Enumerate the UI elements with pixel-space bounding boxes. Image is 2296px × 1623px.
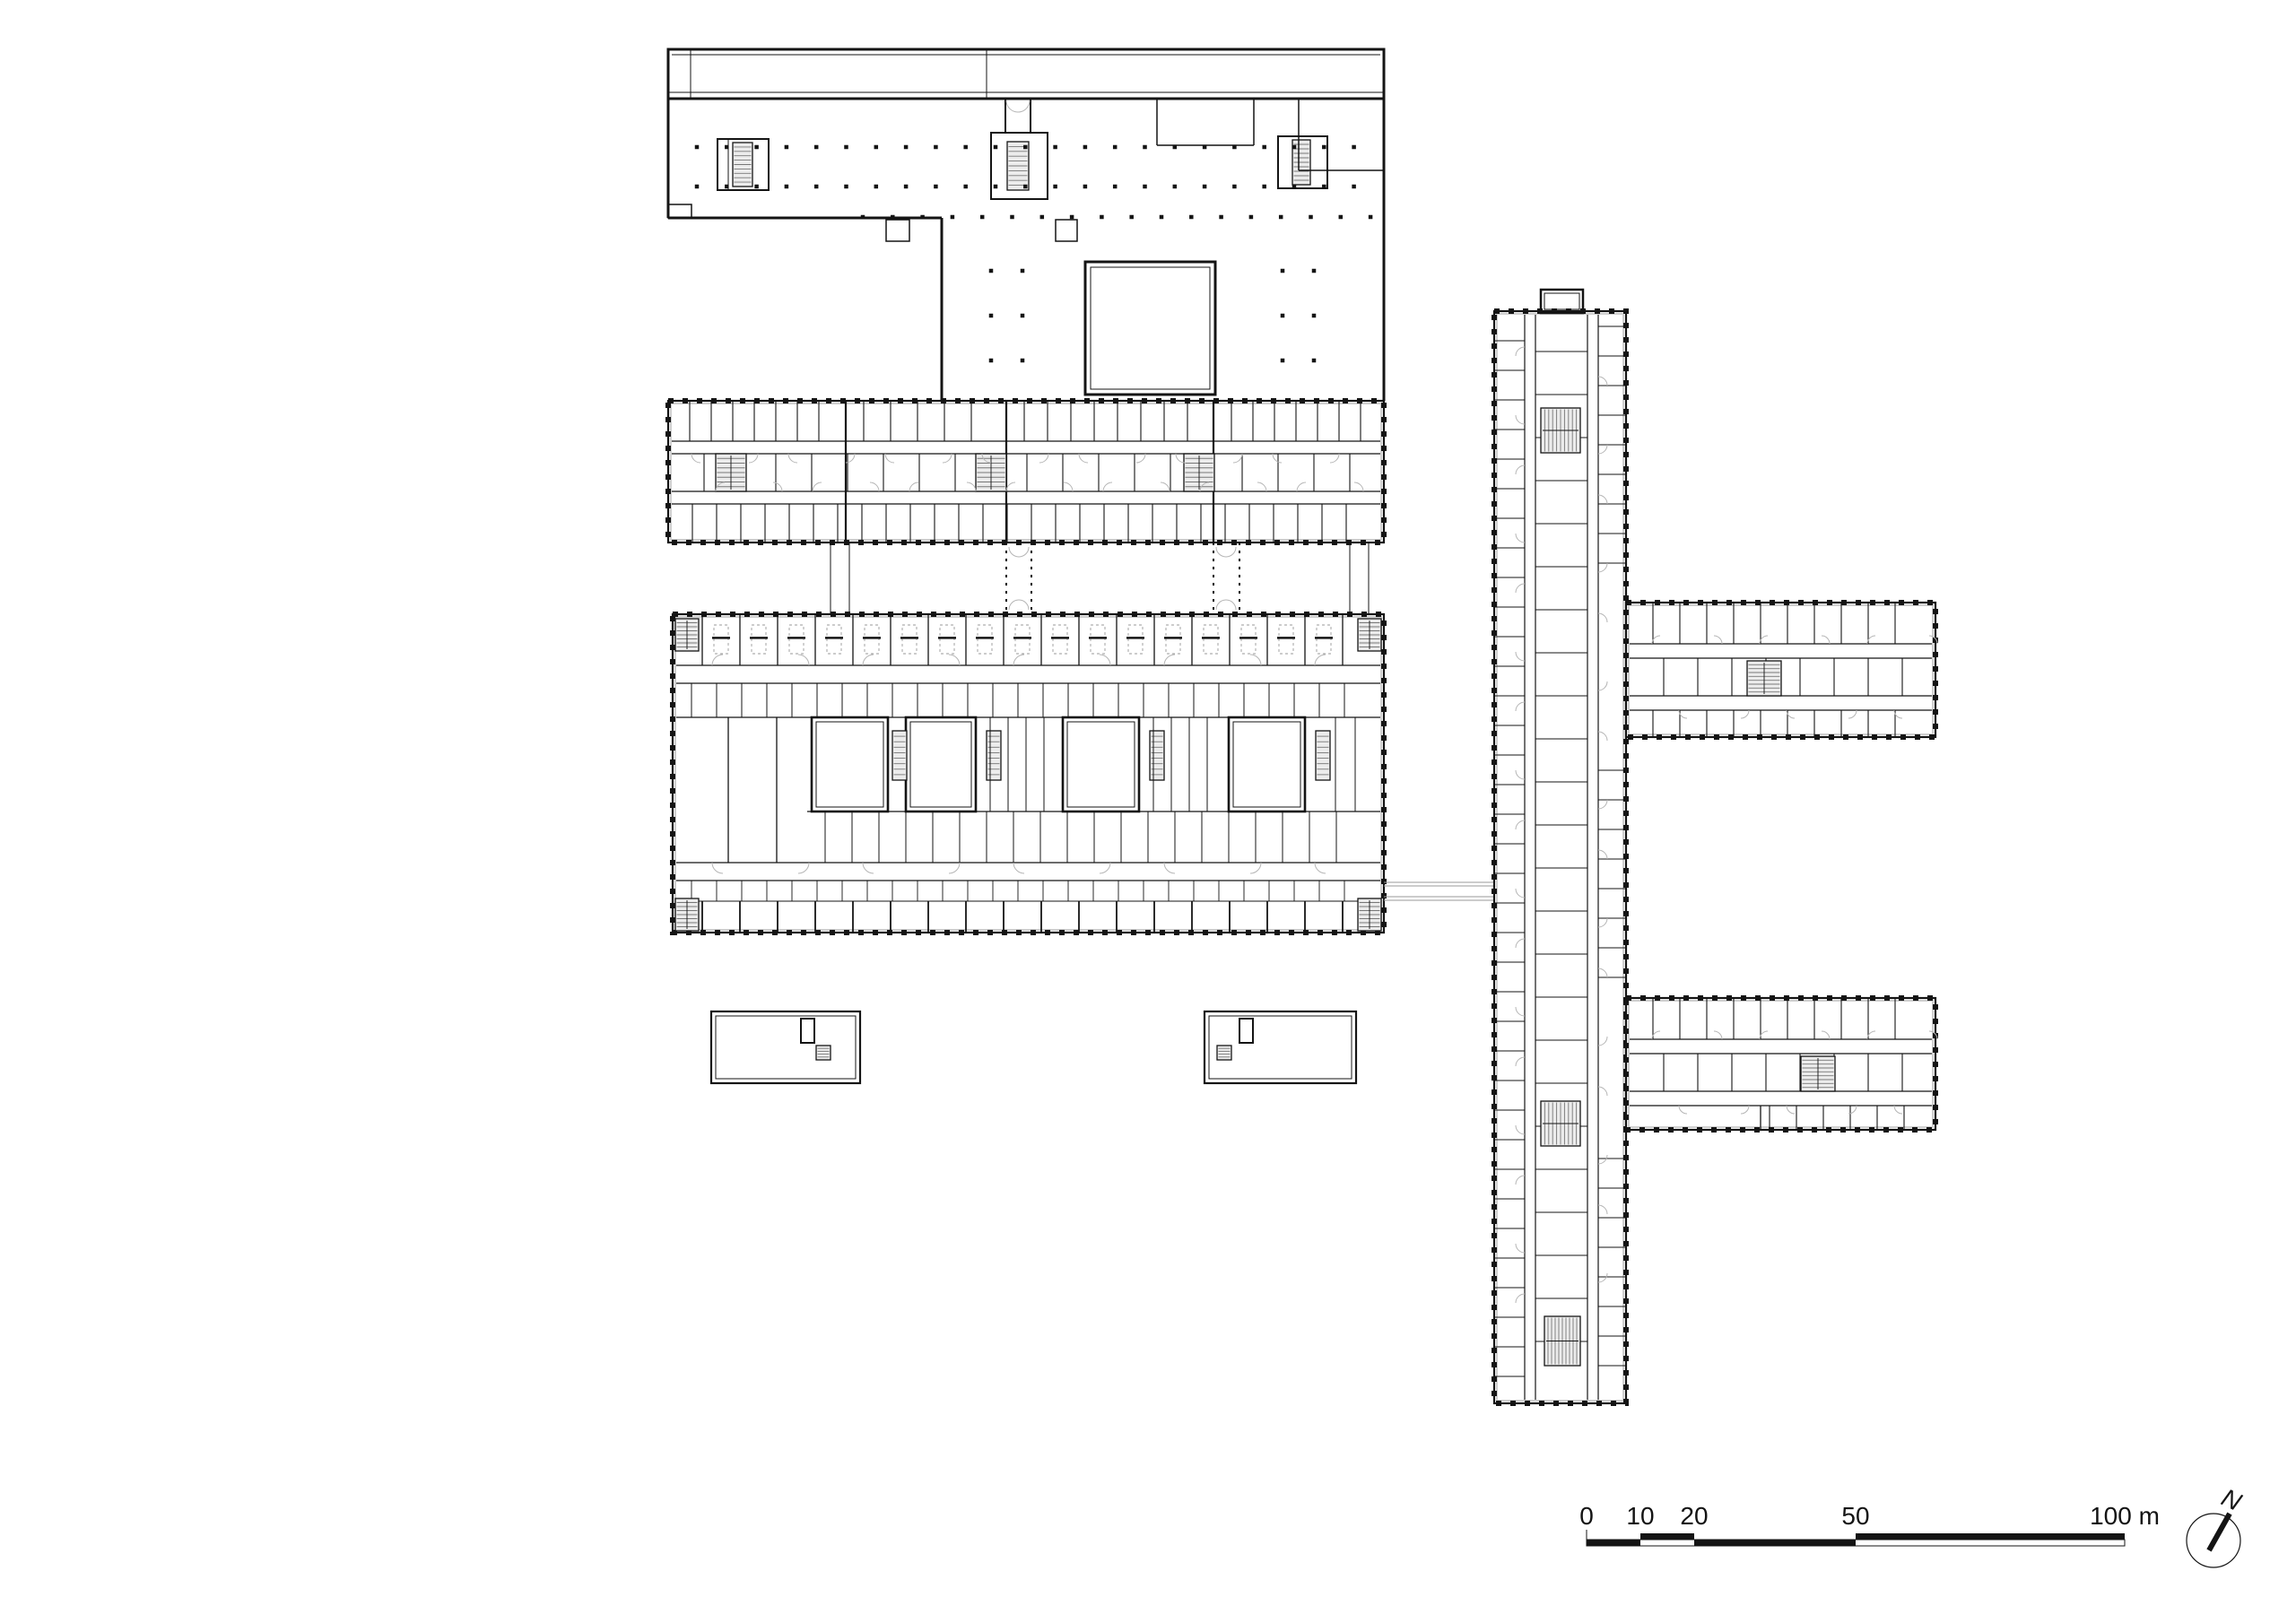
column-dot	[1053, 145, 1057, 150]
building-footprint	[673, 614, 1384, 933]
column-dot	[1322, 145, 1326, 150]
bridge-to-spine	[1384, 882, 1494, 900]
pavilion-east	[1205, 1011, 1356, 1083]
column-dot	[904, 145, 909, 150]
scale-bar-label: 0	[1579, 1502, 1594, 1530]
scale-bar-segment	[1694, 1540, 1856, 1546]
column-dot	[1262, 145, 1266, 150]
column-dot	[904, 185, 909, 189]
north-label: N	[2217, 1483, 2246, 1516]
column-dot	[994, 185, 998, 189]
column-dot	[1021, 269, 1025, 273]
stair-core	[1217, 1046, 1231, 1060]
column-dot	[1143, 185, 1147, 189]
column-dot	[695, 185, 700, 189]
wall-rect	[886, 220, 909, 241]
column-dot	[1010, 215, 1014, 220]
wall-rect	[668, 204, 691, 218]
door-arc	[1009, 547, 1019, 557]
wall-rect	[1544, 293, 1579, 309]
column-dot	[1281, 359, 1285, 363]
floor-plan-drawing: 0102050100 mN	[0, 0, 2296, 1623]
column-dot	[1281, 269, 1285, 273]
door-arc	[1019, 600, 1029, 610]
column-dot	[874, 145, 879, 150]
column-dot	[861, 215, 865, 220]
column-dot	[1262, 185, 1266, 189]
column-dot	[814, 185, 819, 189]
column-dot	[1083, 185, 1088, 189]
east-spine-building	[1494, 290, 1626, 1403]
door-arc	[1216, 600, 1226, 610]
column-dot	[1023, 185, 1028, 189]
door-arc	[1216, 547, 1226, 557]
north-arrow: N	[2187, 1483, 2246, 1567]
column-dot	[994, 145, 998, 150]
scale-bar-label: 20	[1680, 1502, 1708, 1530]
column-dot	[1203, 185, 1207, 189]
column-dot	[980, 215, 985, 220]
column-dot	[1232, 145, 1237, 150]
column-dot	[785, 145, 789, 150]
east-wing-north	[1626, 603, 1937, 737]
column-dot	[934, 185, 938, 189]
column-dot	[1070, 215, 1074, 220]
column-dot	[1312, 359, 1317, 363]
column-dot	[1189, 215, 1194, 220]
column-dot	[1312, 269, 1317, 273]
column-dot	[1129, 215, 1134, 220]
scale-bar-segment	[1640, 1533, 1694, 1540]
column-dot	[1173, 185, 1178, 189]
wall-rect	[668, 49, 1384, 99]
column-dot	[754, 185, 759, 189]
column-dot	[1160, 215, 1164, 220]
column-dot	[1219, 215, 1223, 220]
column-dot	[1322, 185, 1326, 189]
wall-rect	[801, 1019, 814, 1043]
building-footprint	[1494, 311, 1626, 1403]
column-dot	[814, 145, 819, 150]
column-dot	[1292, 185, 1297, 189]
link-corridors	[831, 542, 1369, 614]
column-dot	[725, 145, 729, 150]
stair-core	[1150, 731, 1164, 780]
wall-rect	[1085, 262, 1215, 395]
column-dot	[1021, 359, 1025, 363]
north-needle	[2209, 1514, 2230, 1550]
column-dot	[1143, 145, 1147, 150]
stair-core	[816, 1046, 831, 1060]
wall-rect	[1091, 267, 1210, 389]
column-dot	[1292, 145, 1297, 150]
column-dot	[1369, 215, 1373, 220]
column-dot	[1113, 185, 1118, 189]
column-dot	[1312, 314, 1317, 318]
column-dot	[1083, 145, 1088, 150]
column-dot	[1352, 145, 1356, 150]
column-dot	[1281, 314, 1285, 318]
column-dot	[844, 185, 848, 189]
wall-rect	[711, 1011, 860, 1083]
door-arc	[1006, 100, 1018, 112]
column-dot	[785, 185, 789, 189]
pavilion-west	[711, 1011, 860, 1083]
column-dot	[1352, 185, 1356, 189]
column-dot	[1053, 185, 1057, 189]
column-dot	[1339, 215, 1344, 220]
scale-bar-label: 50	[1841, 1502, 1869, 1530]
column-dot	[1232, 185, 1237, 189]
column-dot	[934, 145, 938, 150]
scale-bar-label: 100 m	[2090, 1502, 2160, 1530]
east-wing-south	[1626, 998, 1937, 1130]
column-dot	[989, 314, 994, 318]
column-dot	[874, 185, 879, 189]
column-dot	[963, 145, 968, 150]
wall-rect	[1239, 1019, 1253, 1043]
column-dot	[1203, 145, 1207, 150]
column-dot	[1023, 145, 1028, 150]
column-dot	[891, 215, 895, 220]
column-dot	[989, 269, 994, 273]
column-dot	[1040, 215, 1045, 220]
column-dot	[1309, 215, 1313, 220]
scale-bar-segment	[1587, 1540, 1640, 1546]
door-arc	[1226, 547, 1236, 557]
column-dot	[844, 145, 848, 150]
building-footprint	[1626, 998, 1935, 1130]
column-dot	[1173, 145, 1178, 150]
column-dot	[725, 185, 729, 189]
stair-core	[892, 731, 907, 780]
column-dot	[695, 145, 700, 150]
column-dot	[963, 185, 968, 189]
column-dot	[1279, 215, 1283, 220]
wall-rect	[716, 1016, 856, 1079]
scale-bar-segment	[1856, 1533, 2125, 1540]
upper-hall-building	[668, 49, 1384, 401]
column-dot	[1113, 145, 1118, 150]
column-dot	[1021, 314, 1025, 318]
column-dot	[920, 215, 925, 220]
wall-rect	[1056, 220, 1077, 241]
floor-plan-page: 0102050100 mN	[0, 0, 2296, 1623]
door-arc	[1018, 100, 1030, 112]
column-dot	[989, 359, 994, 363]
mid-lab-strip	[668, 401, 1384, 542]
ward-block	[673, 614, 1384, 933]
scale-bar-label: 10	[1626, 1502, 1654, 1530]
column-dot	[754, 145, 759, 150]
door-arc	[1019, 547, 1029, 557]
door-arc	[1009, 600, 1019, 610]
stair-core	[1316, 731, 1330, 780]
column-dot	[951, 215, 955, 220]
door-arc	[1226, 600, 1236, 610]
scale-bar: 0102050100 m	[1579, 1502, 2160, 1546]
column-dot	[1100, 215, 1104, 220]
stair-core	[987, 731, 1001, 780]
column-dot	[1249, 215, 1254, 220]
